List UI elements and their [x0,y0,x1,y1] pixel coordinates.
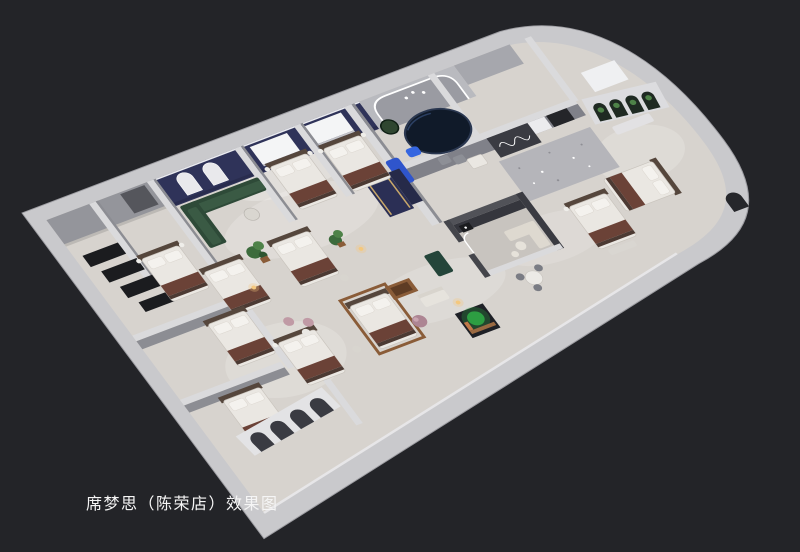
floorplan-render-svg [0,0,800,552]
caption: 席梦思（陈荣店）效果图 [86,490,279,514]
render-image: 席梦思（陈荣店）效果图 [0,0,800,552]
